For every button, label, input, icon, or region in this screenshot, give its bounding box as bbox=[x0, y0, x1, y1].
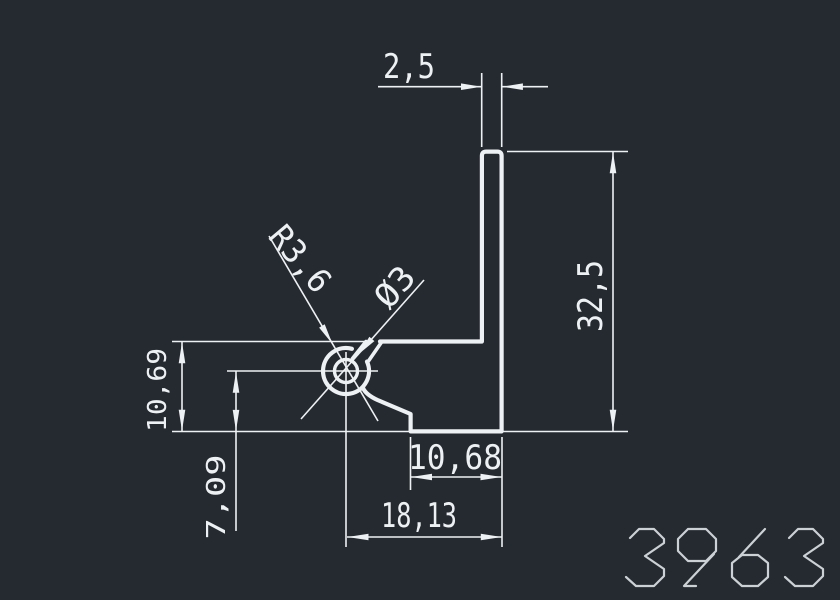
dim-hole-center-offset: 7,09 bbox=[202, 371, 239, 540]
arrowhead-right-icon bbox=[461, 83, 482, 90]
dim-wall-thickness: 2,5 bbox=[378, 47, 548, 90]
arrowhead-right-icon bbox=[481, 534, 502, 541]
drawing-number-digit bbox=[739, 529, 765, 557]
dim-total-height: 32,5 bbox=[571, 152, 616, 432]
dim-hole-diameter-label: Ø3 bbox=[366, 258, 424, 316]
dim-leg-height: 10,69 bbox=[143, 342, 185, 433]
arrowhead-left-icon bbox=[502, 83, 523, 90]
dim-hole-center-offset-label: 7,09 bbox=[202, 455, 232, 540]
dim-wall-thickness-label: 2,5 bbox=[383, 47, 435, 87]
drawing-number-digit bbox=[785, 529, 823, 586]
drawing-number bbox=[626, 529, 823, 586]
dim-total-height-label: 32,5 bbox=[571, 260, 611, 332]
dim-bottom-width: 18,13 bbox=[347, 496, 502, 540]
screw-slot-left-edge bbox=[353, 342, 367, 359]
dim-bottom-step: 10,68 bbox=[408, 438, 502, 480]
arrowhead-down-icon bbox=[610, 410, 617, 431]
arrowhead-left-icon bbox=[348, 534, 369, 541]
dim-leg-height-label: 10,69 bbox=[143, 348, 173, 432]
arrowhead-down-icon bbox=[233, 410, 240, 431]
drawing-number-digit bbox=[732, 555, 768, 586]
dim-bottom-step-label: 10,68 bbox=[408, 438, 502, 478]
dim-bottom-width-label: 18,13 bbox=[381, 496, 457, 536]
drawing-number-digit bbox=[626, 529, 664, 586]
cad-drawing: 2,5 32,5 10,69 7,09 10,68 18,13 bbox=[0, 0, 840, 600]
drawing-canvas[interactable]: 2,5 32,5 10,69 7,09 10,68 18,13 bbox=[0, 0, 840, 600]
drawing-number-digit bbox=[678, 529, 716, 561]
arrowhead-down-icon bbox=[179, 410, 186, 431]
leader-boss-radius: R3,6 bbox=[261, 217, 378, 421]
screw-slot-right-edge bbox=[369, 342, 383, 362]
arrowhead-up-icon bbox=[179, 342, 186, 363]
drawing-number-digit bbox=[684, 554, 714, 586]
arrowhead-up-icon bbox=[610, 152, 617, 173]
dim-boss-radius-label: R3,6 bbox=[261, 217, 340, 300]
arrowhead-up-icon bbox=[233, 372, 240, 393]
